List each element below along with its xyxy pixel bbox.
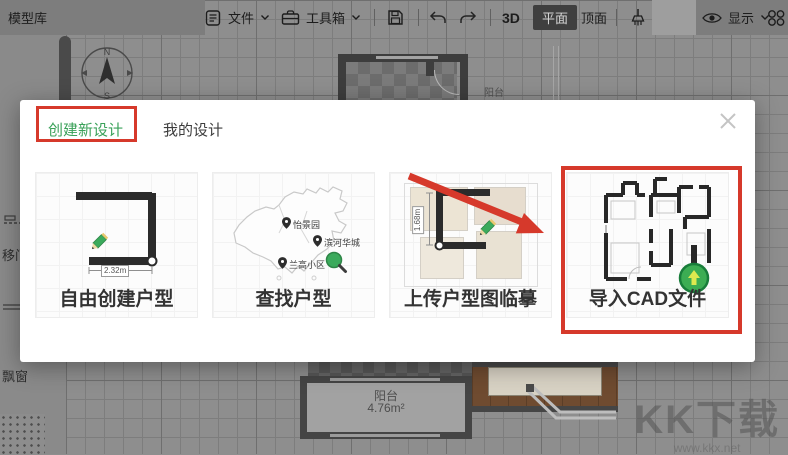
chevron-down-icon	[260, 14, 270, 21]
view-top-label: 顶面	[581, 8, 607, 27]
view-3d-button[interactable]: 3D	[502, 0, 520, 35]
dimension-label: 1.68m	[412, 206, 424, 234]
apps-grid-button[interactable]	[766, 0, 787, 35]
map-pin-icon	[282, 217, 291, 231]
create-design-dialog: 创建新设计 我的设计 2.32m 自由创建户型 怡景园 滨河华城	[20, 100, 755, 362]
toolbox-menu-label: 工具箱	[306, 8, 345, 27]
redo-button[interactable]	[458, 0, 478, 35]
model-library-label: 模型库	[8, 8, 47, 27]
watermark-title: KK下载	[634, 400, 780, 440]
card-search-floorplan[interactable]: 怡景园 滨河华城 兰高小区 查找户型	[212, 172, 375, 318]
card-title: 查找户型	[213, 284, 374, 311]
undo-button[interactable]	[428, 0, 448, 35]
card-title: 上传户型图临摹	[390, 284, 551, 311]
background-floorplan-top: 阳台	[338, 46, 514, 102]
save-button[interactable]	[386, 0, 405, 35]
undo-icon	[428, 10, 448, 25]
view-plan-label: 平面	[533, 5, 577, 30]
room-area-label: 4.76m²	[300, 401, 472, 415]
view-plan-button[interactable]: 平面	[533, 0, 577, 35]
map-pin-item: 滨河华城	[313, 235, 360, 249]
apps-grid-icon	[766, 9, 787, 27]
pencil-icon	[86, 229, 112, 260]
redo-icon	[458, 10, 478, 25]
close-icon	[717, 119, 739, 136]
save-icon	[386, 8, 405, 27]
document-icon	[204, 9, 222, 27]
card-title: 导入CAD文件	[567, 284, 728, 311]
map-pin-item: 怡景园	[282, 217, 320, 231]
broom-icon	[629, 8, 647, 27]
cad-floorplan-icon	[567, 173, 730, 298]
file-menu-label: 文件	[228, 8, 254, 27]
sidebar-item-bay-window[interactable]: 飘窗	[2, 366, 28, 385]
card-upload-floorplan-trace[interactable]: 1.68m 上传户型图临摹	[389, 172, 552, 318]
toolbox-icon	[281, 9, 300, 26]
dimension-label: 2.32m	[101, 265, 129, 277]
view-top-button[interactable]: 顶面	[581, 0, 607, 35]
chevron-down-icon	[351, 14, 361, 21]
map-pin-label: 怡景园	[293, 218, 320, 231]
toolbar-divider	[374, 9, 375, 26]
texture-swatch[interactable]	[0, 414, 45, 454]
map-pin-item: 兰高小区	[278, 257, 325, 271]
site-watermark: KK下载 www.kkx.net	[634, 400, 780, 454]
display-menu-button[interactable]: 显示	[702, 0, 770, 35]
compass: N S	[78, 44, 136, 107]
view-3d-label: 3D	[502, 10, 520, 26]
eye-icon	[702, 11, 722, 25]
map-pin-icon	[278, 257, 287, 271]
file-menu-button[interactable]: 文件	[204, 0, 270, 35]
magnifier-icon	[325, 251, 348, 279]
toolbar-divider	[616, 9, 617, 26]
compass-north-label: N	[104, 47, 111, 57]
tab-my-designs[interactable]: 我的设计	[163, 119, 223, 140]
bay-window-shape	[526, 384, 618, 429]
pencil-icon	[474, 215, 500, 246]
watermark-url: www.kkx.net	[634, 442, 780, 454]
close-button[interactable]	[717, 110, 739, 137]
clear-canvas-button[interactable]	[629, 0, 647, 35]
card-free-create-floorplan[interactable]: 2.32m 自由创建户型	[35, 172, 198, 318]
background-floorplan-bottom: 阳台 4.76m²	[296, 362, 618, 454]
card-import-cad-file[interactable]: 导入CAD文件	[566, 172, 729, 318]
map-pin-icon	[313, 235, 322, 249]
display-menu-label: 显示	[728, 8, 754, 27]
tab-create-new-design[interactable]: 创建新设计	[48, 119, 123, 140]
room-label: 阳台	[484, 84, 504, 99]
toolbar-divider	[490, 9, 491, 26]
card-title: 自由创建户型	[36, 284, 197, 311]
toolbar-divider	[418, 9, 419, 26]
wall-segment	[59, 36, 71, 100]
wall-segment	[553, 46, 559, 100]
sidebar-item-model-library[interactable]: 模型库	[8, 0, 47, 35]
map-pin-label: 兰高小区	[289, 258, 325, 271]
map-pin-label: 滨河华城	[324, 236, 360, 249]
